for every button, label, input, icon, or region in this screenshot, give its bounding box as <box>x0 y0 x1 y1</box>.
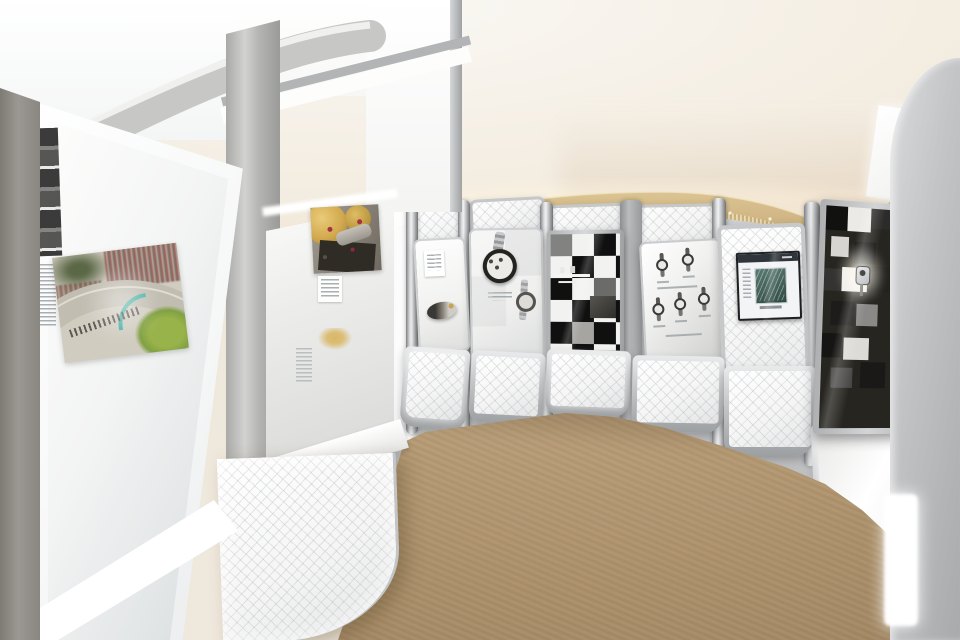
movement-label-card <box>318 276 342 302</box>
movement-photo <box>310 204 381 273</box>
left-pillar <box>0 88 40 640</box>
racetrack-photo <box>52 243 189 363</box>
card-text <box>321 279 339 299</box>
photo-flare <box>82 262 162 344</box>
fine-print <box>296 348 312 384</box>
gallery-photo <box>0 0 960 640</box>
gold-emblem <box>318 328 352 350</box>
